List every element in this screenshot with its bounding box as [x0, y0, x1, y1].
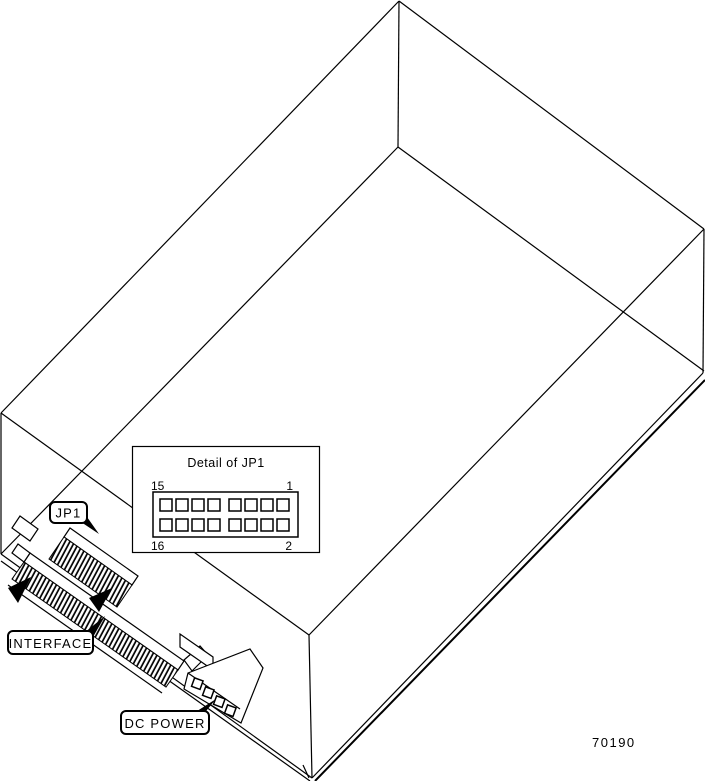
detail-pin-square — [245, 519, 257, 531]
pin1-label: 1 — [286, 479, 293, 493]
drive-front-right-top-edge — [309, 229, 704, 635]
callout-jp1: JP1 — [50, 502, 99, 534]
detail-pin-square — [277, 519, 289, 531]
pin16-label: 16 — [151, 539, 165, 553]
dc-pin-1 — [192, 678, 204, 690]
detail-pin-square — [245, 499, 257, 511]
interface-callout-label: INTERFACE — [9, 636, 93, 651]
drive-connector-diagram: Detail of JP1 15 1 16 2 JP1 INTERFACE DC… — [0, 0, 705, 781]
detail-pin-square — [229, 519, 241, 531]
dc-pin-3 — [214, 696, 226, 708]
detail-pin-square — [229, 499, 241, 511]
pin2-label: 2 — [285, 539, 292, 553]
detail-inset: Detail of JP1 15 1 16 2 — [133, 447, 320, 554]
drive-rear-right-bottom-edge — [398, 147, 704, 371]
dc-pin-2 — [203, 687, 215, 699]
detail-pin-square — [176, 519, 188, 531]
detail-pin-square — [208, 519, 220, 531]
dc-pin-4 — [225, 705, 237, 717]
detail-pin-square — [176, 499, 188, 511]
drive-front-vertical-edge — [309, 635, 312, 778]
pin15-label: 15 — [151, 479, 165, 493]
detail-inset-title: Detail of JP1 — [187, 456, 264, 470]
detail-pin-square — [160, 519, 172, 531]
detail-pin-square — [160, 499, 172, 511]
figure-number: 70190 — [592, 735, 636, 750]
drive-rear-vertical-edge — [398, 1, 399, 147]
drive-right-vertical-edge — [703, 229, 704, 373]
detail-pin-square — [261, 519, 273, 531]
detail-pin-square — [208, 499, 220, 511]
rim-right-edge — [312, 373, 703, 778]
rim-right-edge-offset — [315, 380, 705, 781]
jp1-callout-label: JP1 — [55, 506, 81, 521]
detail-pin-square — [261, 499, 273, 511]
dc-power-callout-label: DC POWER — [124, 716, 205, 731]
drive-body-outline — [1, 1, 704, 778]
detail-pin-square — [192, 519, 204, 531]
detail-pin-square — [192, 499, 204, 511]
drive-top-right-edge — [399, 1, 704, 229]
detail-pin-square — [277, 499, 289, 511]
